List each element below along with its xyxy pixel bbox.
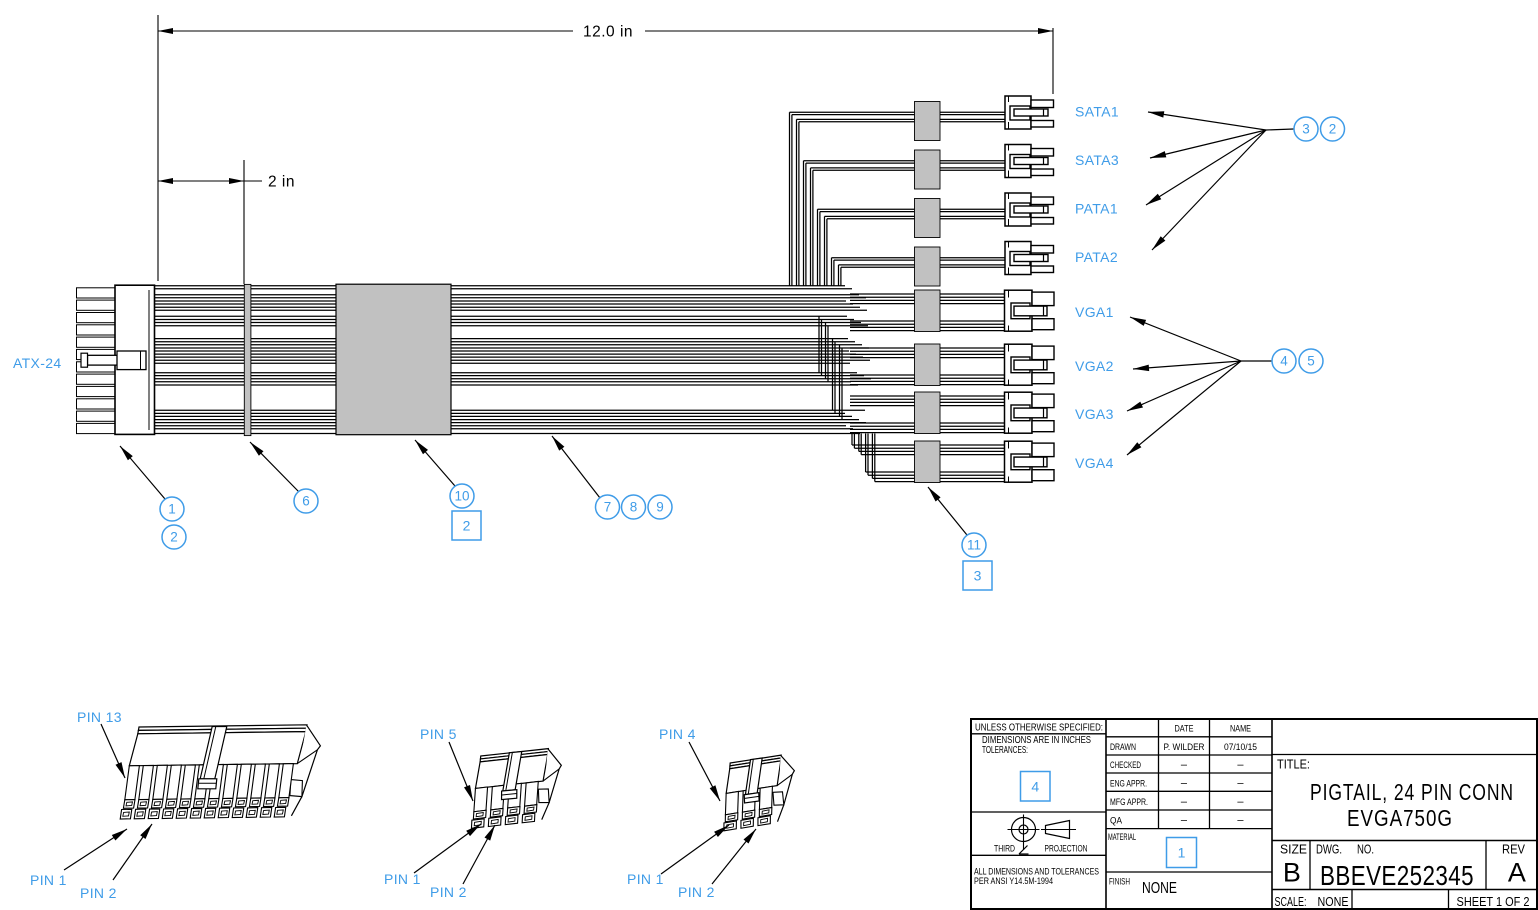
- svg-text:SATA1: SATA1: [1075, 104, 1119, 120]
- svg-text:–: –: [1237, 777, 1244, 789]
- svg-text:–: –: [1237, 815, 1244, 827]
- svg-text:2: 2: [170, 530, 178, 545]
- svg-text:PIN 1: PIN 1: [384, 871, 421, 887]
- svg-text:THIRD: THIRD: [994, 844, 1015, 855]
- svg-text:PIN 5: PIN 5: [420, 726, 457, 742]
- svg-text:10: 10: [454, 489, 469, 504]
- svg-text:PIN 1: PIN 1: [30, 872, 67, 888]
- svg-text:12.0 in: 12.0 in: [583, 24, 633, 41]
- svg-text:–: –: [1237, 759, 1244, 771]
- svg-text:PIN 1: PIN 1: [627, 871, 664, 887]
- svg-text:PATA2: PATA2: [1075, 249, 1118, 265]
- svg-text:PIN 2: PIN 2: [678, 884, 715, 900]
- svg-text:CHECKED: CHECKED: [1110, 760, 1141, 771]
- svg-text:FINISH: FINISH: [1109, 877, 1130, 887]
- svg-text:4: 4: [1031, 778, 1039, 794]
- svg-text:SIZE: SIZE: [1280, 842, 1307, 857]
- svg-text:PIGTAIL, 24 PIN CONN: PIGTAIL, 24 PIN CONN: [1310, 779, 1514, 805]
- svg-text:PATA1: PATA1: [1075, 201, 1118, 217]
- svg-text:2 in: 2 in: [268, 174, 295, 191]
- svg-text:B: B: [1283, 858, 1301, 888]
- svg-text:1: 1: [1178, 845, 1186, 861]
- svg-text:REV: REV: [1502, 842, 1525, 857]
- svg-text:SHEET 1 OF 2: SHEET 1 OF 2: [1457, 894, 1530, 909]
- svg-text:VGA4: VGA4: [1075, 455, 1114, 471]
- svg-text:–: –: [1237, 796, 1244, 808]
- svg-text:P. WILDER: P. WILDER: [1164, 742, 1205, 753]
- svg-text:11: 11: [967, 538, 981, 553]
- svg-text:QA: QA: [1110, 816, 1123, 827]
- svg-text:7: 7: [604, 500, 612, 515]
- svg-text:VGA3: VGA3: [1075, 406, 1114, 422]
- svg-text:MATERIAL: MATERIAL: [1108, 832, 1136, 842]
- svg-text:NONE: NONE: [1142, 880, 1177, 897]
- svg-text:SATA3: SATA3: [1075, 152, 1119, 168]
- svg-text:3: 3: [1302, 122, 1310, 137]
- svg-text:1: 1: [168, 502, 176, 517]
- svg-text:A: A: [1508, 858, 1526, 888]
- svg-text:3: 3: [974, 568, 982, 584]
- svg-text:PROJECTION: PROJECTION: [1045, 844, 1088, 855]
- svg-text:DRAWN: DRAWN: [1110, 742, 1136, 753]
- svg-text:NO.: NO.: [1357, 842, 1374, 857]
- svg-text:TOLERANCES:: TOLERANCES:: [982, 745, 1028, 756]
- svg-text:2: 2: [1329, 122, 1337, 137]
- svg-text:–: –: [1181, 815, 1188, 827]
- svg-text:EVGA750G: EVGA750G: [1347, 805, 1453, 831]
- svg-text:VGA1: VGA1: [1075, 304, 1114, 320]
- svg-text:PIN 4: PIN 4: [659, 726, 696, 742]
- svg-text:4: 4: [1280, 354, 1288, 369]
- svg-text:–: –: [1181, 796, 1188, 808]
- svg-text:PER ANSI Y14.5M-1994: PER ANSI Y14.5M-1994: [974, 876, 1053, 887]
- svg-text:8: 8: [630, 500, 638, 515]
- svg-text:UNLESS OTHERWISE SPECIFIED:: UNLESS OTHERWISE SPECIFIED:: [975, 722, 1103, 734]
- svg-text:NONE: NONE: [1318, 894, 1349, 909]
- svg-text:PIN 2: PIN 2: [80, 885, 117, 901]
- svg-text:ENG APPR.: ENG APPR.: [1110, 778, 1147, 789]
- svg-text:SCALE:: SCALE:: [1275, 894, 1307, 909]
- svg-text:9: 9: [656, 500, 664, 515]
- svg-text:TITLE:: TITLE:: [1277, 757, 1310, 772]
- svg-text:BBEVE252345: BBEVE252345: [1320, 860, 1474, 891]
- svg-text:PIN 2: PIN 2: [430, 884, 467, 900]
- svg-text:DWG.: DWG.: [1316, 842, 1342, 857]
- svg-text:NAME: NAME: [1230, 724, 1251, 735]
- svg-text:DATE: DATE: [1175, 724, 1194, 735]
- svg-text:–: –: [1181, 777, 1188, 789]
- svg-text:PIN 13: PIN 13: [77, 709, 122, 725]
- svg-text:MFG APPR.: MFG APPR.: [1110, 797, 1148, 808]
- svg-text:–: –: [1181, 759, 1188, 771]
- svg-text:5: 5: [1307, 354, 1315, 369]
- svg-text:07/10/15: 07/10/15: [1224, 742, 1257, 753]
- svg-text:6: 6: [302, 494, 310, 509]
- svg-text:VGA2: VGA2: [1075, 358, 1114, 374]
- svg-text:ATX-24: ATX-24: [13, 355, 62, 371]
- svg-text:2: 2: [463, 518, 471, 534]
